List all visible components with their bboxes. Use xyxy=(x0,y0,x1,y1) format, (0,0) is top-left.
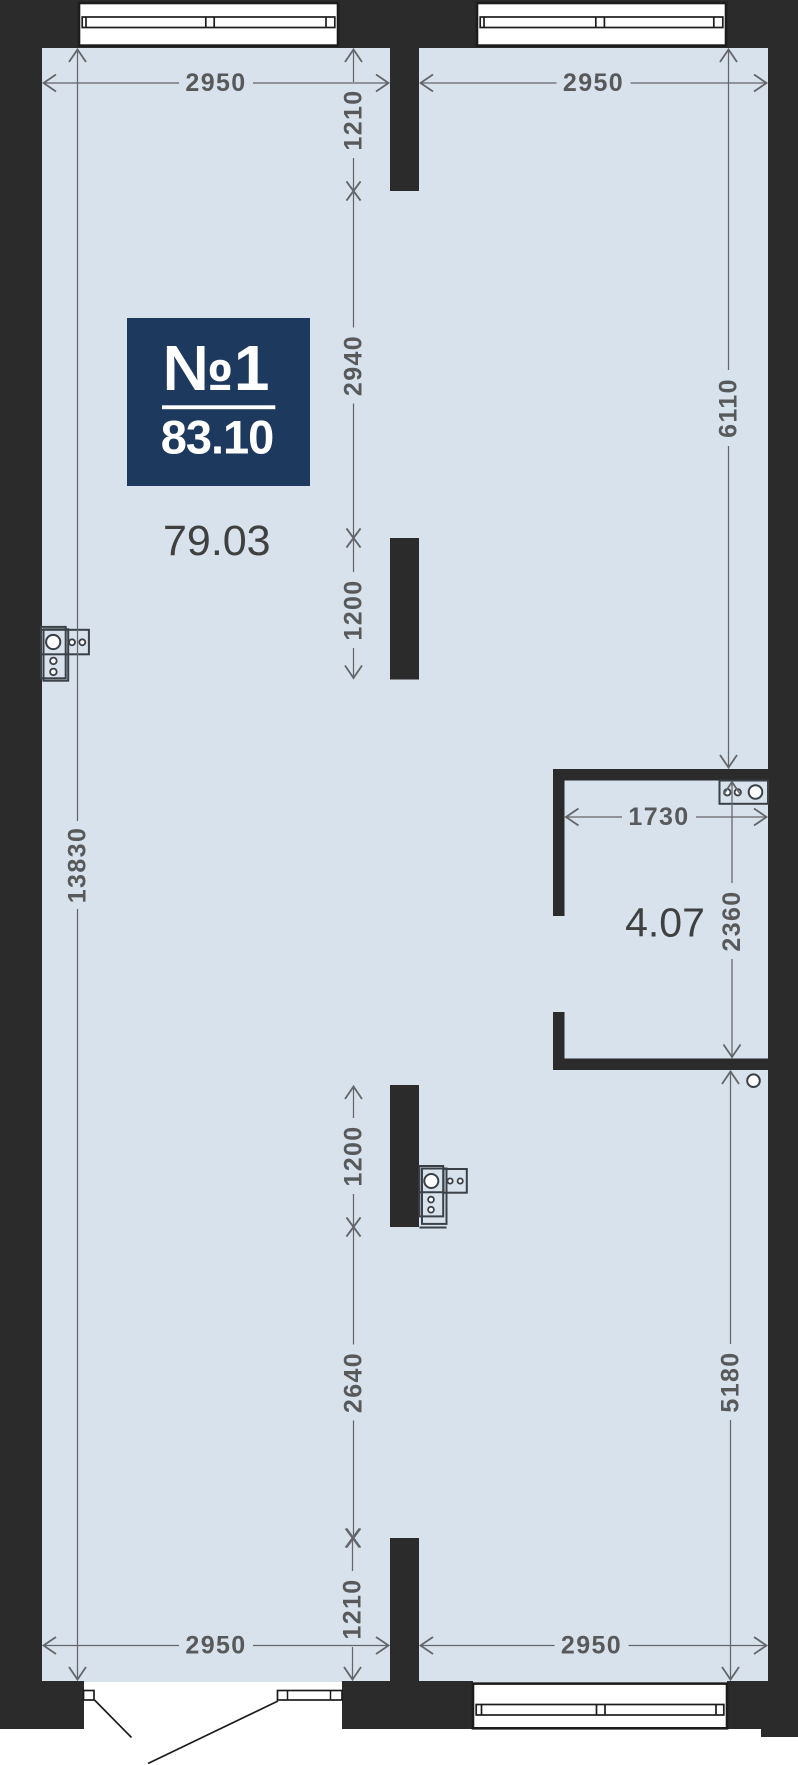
svg-text:2950: 2950 xyxy=(185,1632,246,1660)
svg-text:5180: 5180 xyxy=(717,1351,745,1412)
svg-text:2640: 2640 xyxy=(340,1352,368,1413)
svg-text:6110: 6110 xyxy=(715,378,743,438)
svg-text:79.03: 79.03 xyxy=(163,517,271,565)
svg-text:1200: 1200 xyxy=(340,579,368,640)
svg-text:1210: 1210 xyxy=(339,1578,367,1639)
svg-text:4.07: 4.07 xyxy=(625,900,705,946)
svg-text:2940: 2940 xyxy=(340,335,368,396)
svg-text:№1: №1 xyxy=(163,332,270,404)
svg-text:2950: 2950 xyxy=(563,69,624,97)
svg-text:2360: 2360 xyxy=(718,890,746,951)
svg-text:13830: 13830 xyxy=(64,827,92,904)
svg-text:2950: 2950 xyxy=(185,69,246,97)
svg-text:2950: 2950 xyxy=(561,1632,622,1660)
svg-text:1730: 1730 xyxy=(628,803,689,831)
svg-text:83.10: 83.10 xyxy=(161,410,274,463)
svg-text:1200: 1200 xyxy=(340,1125,368,1186)
svg-text:1210: 1210 xyxy=(340,89,368,150)
